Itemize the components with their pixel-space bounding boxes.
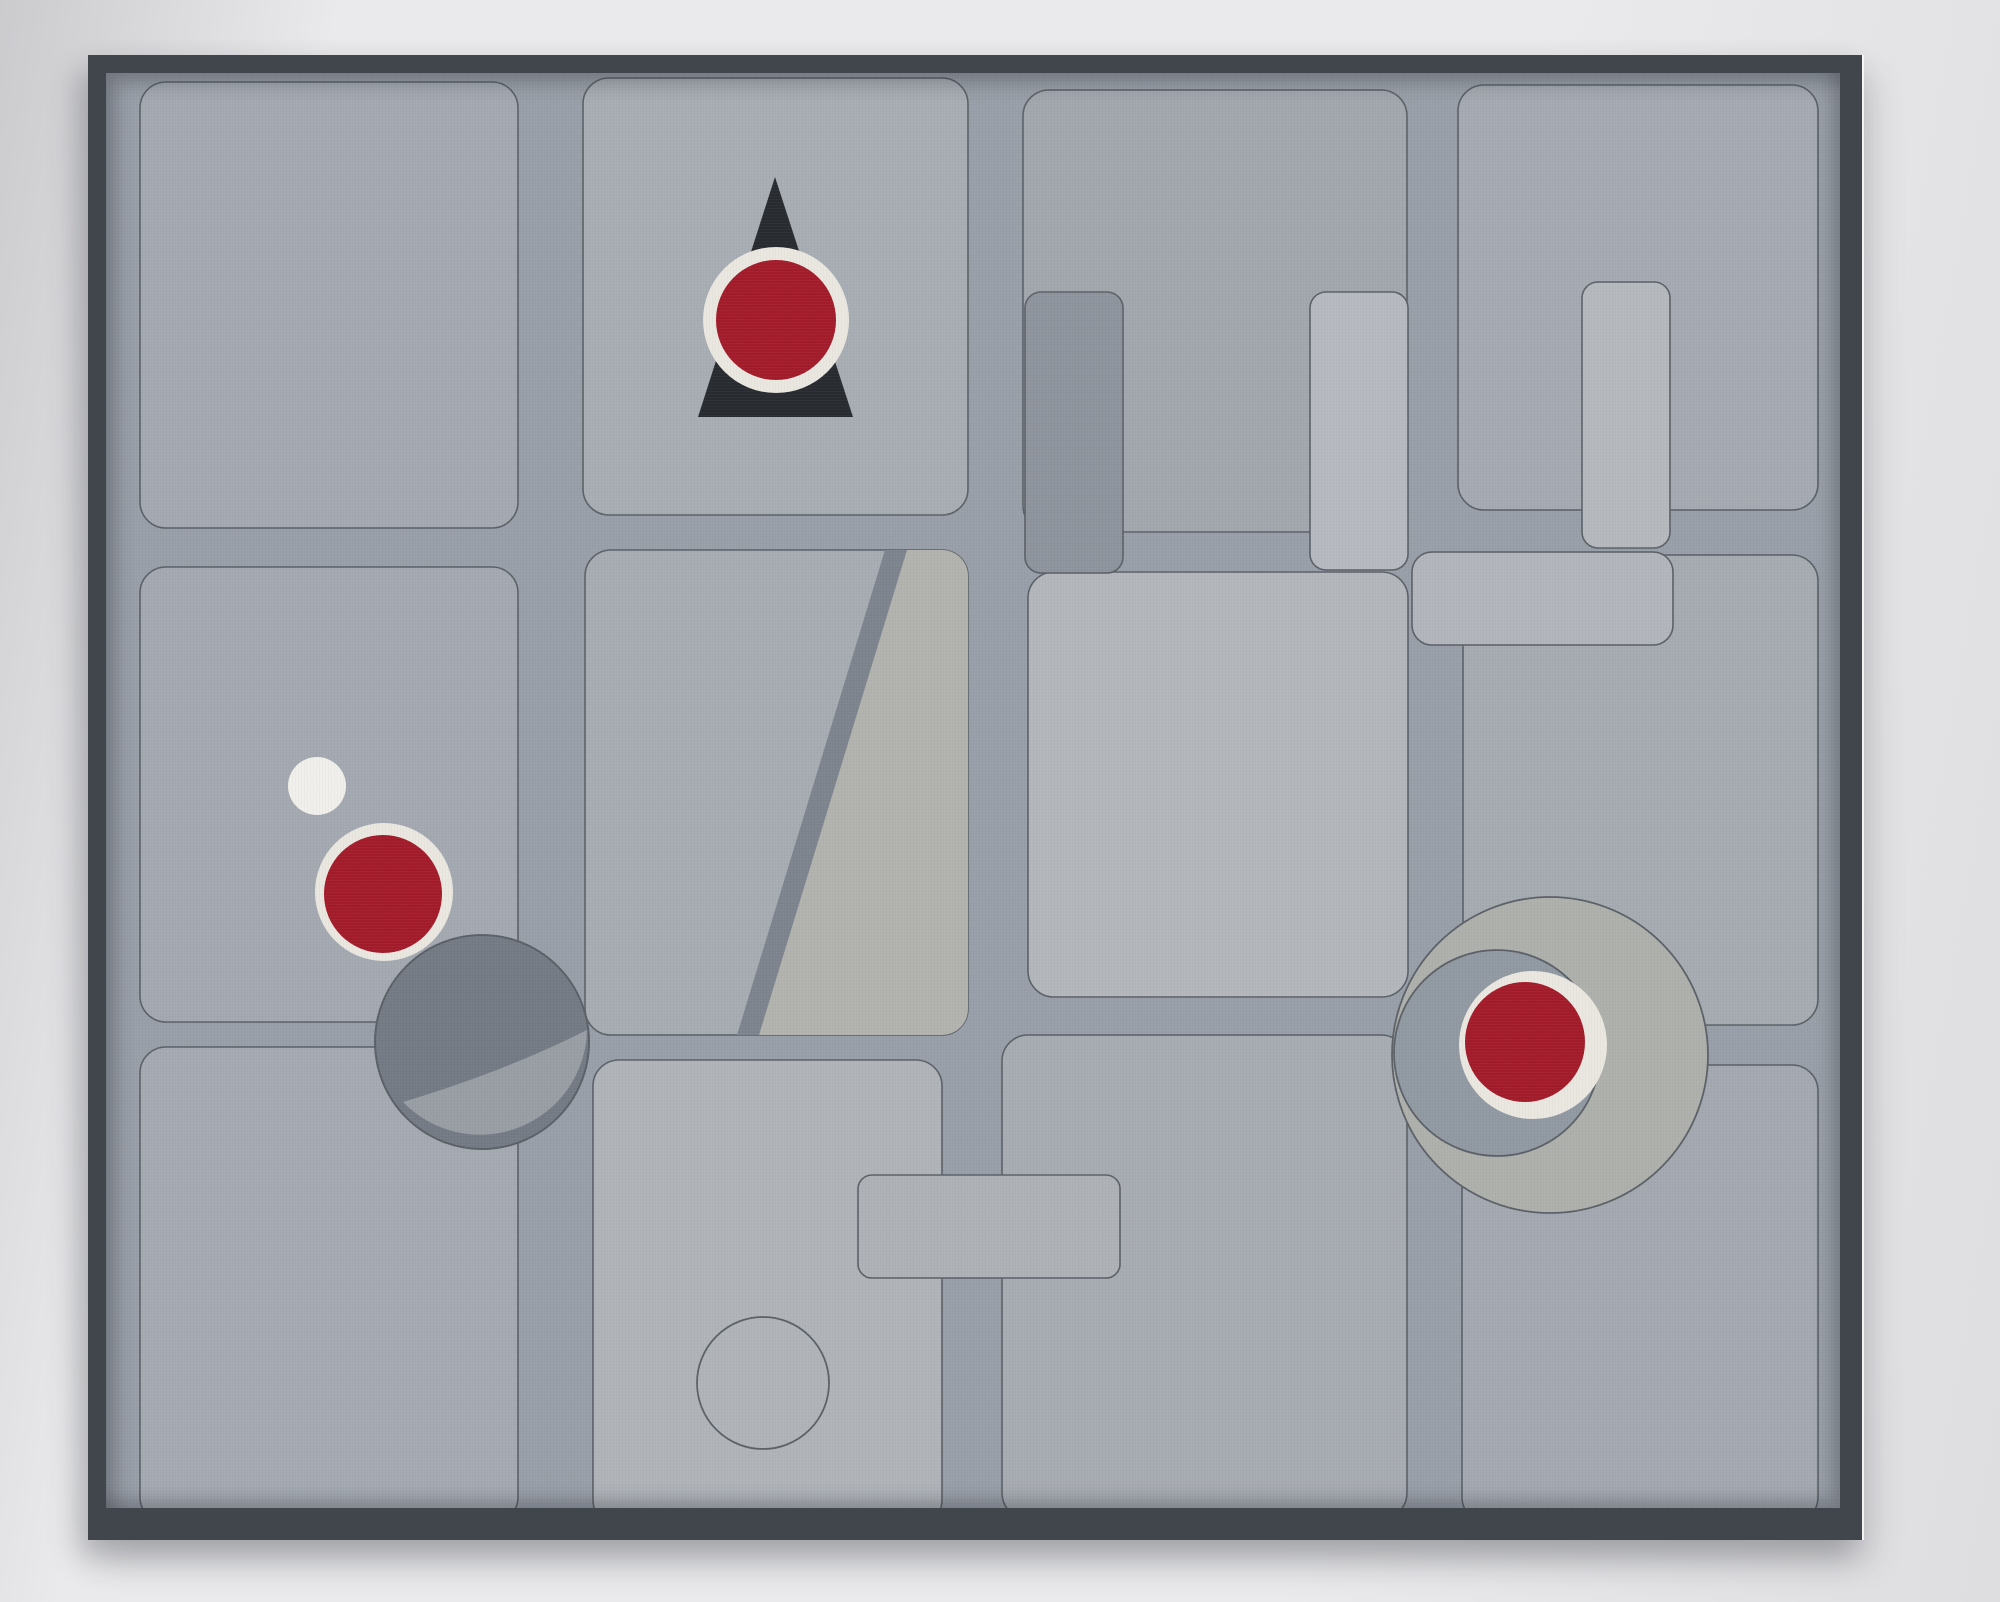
painting-canvas	[106, 73, 1840, 1508]
light-vertical-rectangle-2	[1582, 282, 1670, 548]
panel-r2c3	[1028, 572, 1408, 997]
wall: { "artwork": { "kind": "framed abstract …	[0, 0, 2000, 1602]
panel-r1c1	[140, 82, 518, 528]
light-horizontal-rectangle	[1412, 552, 1673, 645]
picture-frame	[88, 55, 1862, 1540]
dark-vertical-rectangle	[1025, 292, 1123, 573]
left-red-disc	[324, 835, 442, 953]
painting-svg	[106, 73, 1840, 1508]
panel-r3c2	[593, 1060, 942, 1508]
right-red-disc	[1465, 982, 1585, 1102]
frame-edge-highlight	[1862, 55, 1864, 1540]
light-vertical-rectangle-1	[1310, 292, 1408, 570]
center-bottom-rectangle	[858, 1175, 1120, 1278]
white-dot	[288, 757, 346, 815]
triangle-red-disc	[716, 260, 836, 380]
